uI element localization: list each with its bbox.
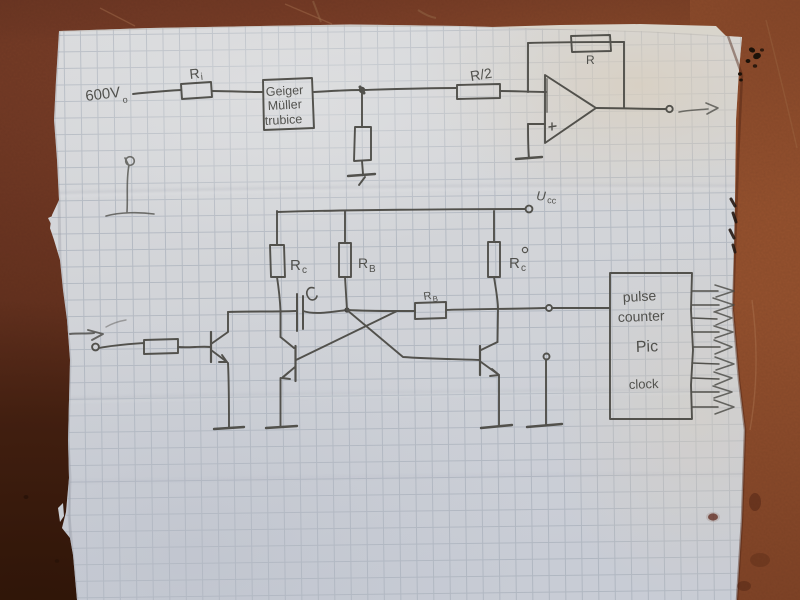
svg-text:R: R <box>586 53 595 67</box>
svg-text:counter: counter <box>618 307 666 325</box>
svg-text:B: B <box>369 264 376 275</box>
svg-text:trubice: trubice <box>264 112 302 128</box>
svg-text:R: R <box>189 65 201 82</box>
svg-text:U: U <box>536 188 547 204</box>
svg-text:R/2: R/2 <box>469 65 493 84</box>
svg-text:cc: cc <box>547 195 557 206</box>
svg-text:c: c <box>302 265 307 276</box>
svg-text:Müller: Müller <box>267 97 302 113</box>
svg-text:clock: clock <box>629 376 660 392</box>
svg-text:c: c <box>521 263 526 274</box>
svg-text:pulse: pulse <box>622 287 656 305</box>
svg-text:R: R <box>290 257 301 274</box>
svg-text:R: R <box>509 255 520 272</box>
svg-text:Pic: Pic <box>636 338 659 356</box>
svg-text:R: R <box>358 255 368 271</box>
